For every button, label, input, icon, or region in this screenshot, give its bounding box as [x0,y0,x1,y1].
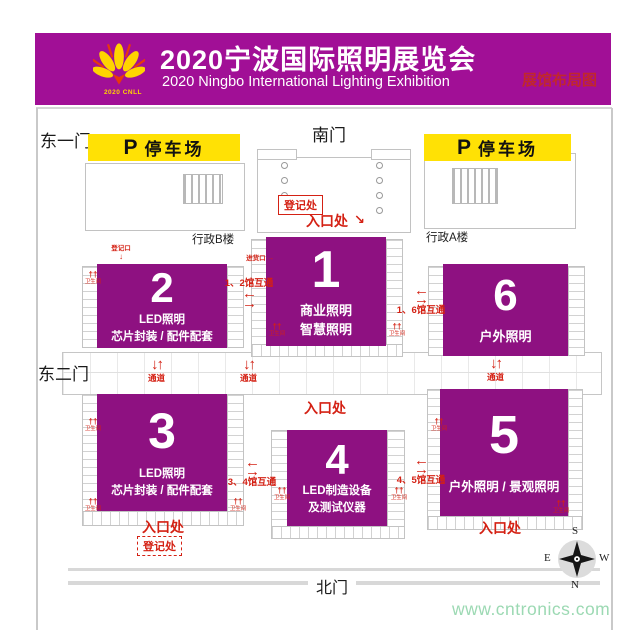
toilet-label: 卫生间 [85,426,101,431]
south-gate-building-wing [371,149,411,160]
layout-map-tagline: 展馆布局图 [522,69,597,90]
toilet-icon: †† [273,487,291,495]
booth-strip [568,389,583,518]
passage-marker: ↓↑ 通道 [487,356,504,382]
parking-area-right: P 停车场 [424,134,571,161]
entrance-label-hall3: 入口处 [142,517,184,537]
compass-south-label: S [572,525,578,537]
header-divider [36,107,612,109]
stairs-hatch [452,168,498,204]
hall-5-number: 5 [489,408,519,462]
gate-east-2: 东二门 [38,360,89,385]
page-subtitle: 2020 Ningbo International Lighting Exhib… [162,74,450,90]
tiny-label-text: 进货口 [246,255,266,262]
toilet-marker: ††卫生间 [268,323,286,337]
hall-2-category: 芯片封装 / 配件配套 [111,329,213,346]
toilet-label: 卫生间 [431,426,447,431]
passage-label: 通道 [240,374,257,383]
logo-text: 2020 CNLL [91,89,155,96]
toilet-label: 卫生间 [230,506,246,511]
toilet-label: 卫生间 [391,495,407,500]
link-label: 1、6馆互通 [397,305,446,316]
toilet-marker: ††卫生间 [84,271,102,285]
hall-4: 4 LED制造设备 及测试仪器 [287,430,387,526]
toilet-marker: ††卫生间 [84,498,102,512]
toilet-icon: †† [390,487,408,495]
hall-4-category: 及测试仪器 [308,500,366,517]
passage-marker: ↓↑ 通道 [148,357,165,383]
passage-marker: ↓↑ 通道 [240,357,257,383]
column-dot [281,162,288,169]
toilet-label: 卫生间 [553,508,569,513]
arrow-up-icon: ↑ [249,356,255,373]
hall-3-category: 芯片封装 / 配件配套 [111,483,213,500]
column-dot [376,162,383,169]
admin-building-a-outline [424,153,576,229]
site-boundary-right [611,108,613,630]
booth-strip [227,394,244,513]
parking-label: 停车场 [478,135,538,160]
admin-building-a-label: 行政A楼 [426,229,468,245]
registration-desk-north: 登记处 [137,536,182,556]
hall-4-number: 4 [325,439,348,481]
toilet-marker: ††卫生间 [388,323,406,337]
tiny-label-text: 登记口 [111,245,131,252]
registration-desk-south: 登记处 [278,195,323,215]
link-halls-1-2: 1、2馆互通 ← → [222,278,276,308]
toilet-marker: ††卫生间 [84,418,102,432]
gate-south: 南门 [312,121,346,146]
gate-east-1: 东一门 [40,127,91,152]
compass-east-label: E [544,552,551,564]
hall-5: 5 户外照明 / 景观照明 [440,389,568,516]
south-gate-building-wing [257,149,297,160]
arrow-right-icon: → [396,465,446,474]
toilet-label: 卫生间 [389,331,405,336]
hall-5-category: 户外照明 / 景观照明 [449,478,559,496]
link-halls-4-5: ← → 4、5馆互通 [396,456,446,486]
header-banner: 2020 CNLL 2020宁波国际照明展览会 2020 Ningbo Inte… [35,33,611,105]
goods-door-label: 进货口 → [240,256,280,263]
passage-label: 通道 [487,373,504,382]
hall-2: 2 LED照明 芯片封装 / 配件配套 [97,264,227,348]
arrow-se-icon: ↘ [354,212,365,228]
toilet-icon: †† [229,498,247,506]
arrow-right-icon: → [396,295,446,304]
parking-p-icon: P [457,136,471,160]
hall-2-number: 2 [150,267,173,309]
toilet-icon: †† [268,323,286,331]
passage-label: 通道 [148,374,165,383]
stairs-hatch [183,174,223,204]
toilet-icon: †† [388,323,406,331]
hall-2-category: LED照明 [139,312,185,329]
link-label: 3、4馆互通 [228,477,277,488]
toilet-marker: ††卫生间 [229,498,247,512]
arrow-up-icon: ↑ [496,355,502,372]
arrow-up-icon: ↑ [157,356,163,373]
column-dot [376,207,383,214]
hall-1-category: 商业照明 [300,302,352,321]
column-dot [376,177,383,184]
toilet-icon: †† [84,418,102,426]
toilet-marker: ††卫生间 [273,487,291,501]
toilet-icon: †† [84,271,102,279]
hall-1-category: 智慧照明 [300,321,352,340]
hall-4-category: LED制造设备 [303,483,372,500]
hall-6-number: 6 [493,274,517,318]
exhibition-logo-icon [93,41,145,87]
toilet-label: 卫生间 [274,495,290,500]
arrow-right-icon: → [267,255,274,262]
watermark: www.cntronics.com [452,599,610,620]
toilet-marker: ††卫生间 [552,500,570,514]
hall-3-category: LED照明 [139,466,185,483]
parking-p-icon: P [123,136,137,160]
arrow-down-icon: ↓ [103,253,139,261]
compass-north-label: N [571,579,579,591]
link-label: 4、5馆互通 [397,475,446,486]
page-title: 2020宁波国际照明展览会 [160,38,476,77]
arrow-right-icon: → [222,299,276,308]
admin-building-b-label: 行政B楼 [192,231,234,247]
registration-door-label: 登记口 ↓ [103,246,139,261]
arrow-right-icon: → [226,467,278,476]
link-halls-1-6: ← → 1、6馆互通 [396,286,446,316]
compass-west-label: W [599,552,609,564]
toilet-label: 卫生间 [269,331,285,336]
entrance-label-hall4: 入口处 [304,398,346,418]
parking-area-left: P 停车场 [88,134,240,161]
link-halls-3-4: ← → 3、4馆互通 [226,458,278,488]
hall-6-category: 户外照明 [479,328,531,347]
exhibition-layout-map: 2020 CNLL 2020宁波国际照明展览会 2020 Ningbo Inte… [0,0,640,640]
toilet-icon: †† [430,418,448,426]
toilet-icon: †† [84,498,102,506]
toilet-marker: ††卫生间 [390,487,408,501]
hall-6: 6 户外照明 [443,264,568,356]
hall-3: 3 LED照明 芯片封装 / 配件配套 [97,394,227,511]
north-road-line [68,568,600,571]
parking-label: 停车场 [145,135,205,160]
entrance-label-hall5: 入口处 [479,518,521,538]
hall-1-number: 1 [312,244,341,296]
booth-strip [568,266,585,356]
compass-rose-icon [557,539,597,579]
hall-3-number: 3 [148,406,176,456]
toilet-icon: †† [552,500,570,508]
toilet-label: 卫生间 [85,506,101,511]
column-dot [376,192,383,199]
gate-north: 北门 [308,574,356,598]
booth-strip [271,526,405,539]
column-dot [281,177,288,184]
toilet-marker: ††卫生间 [430,418,448,432]
toilet-label: 卫生间 [85,279,101,284]
